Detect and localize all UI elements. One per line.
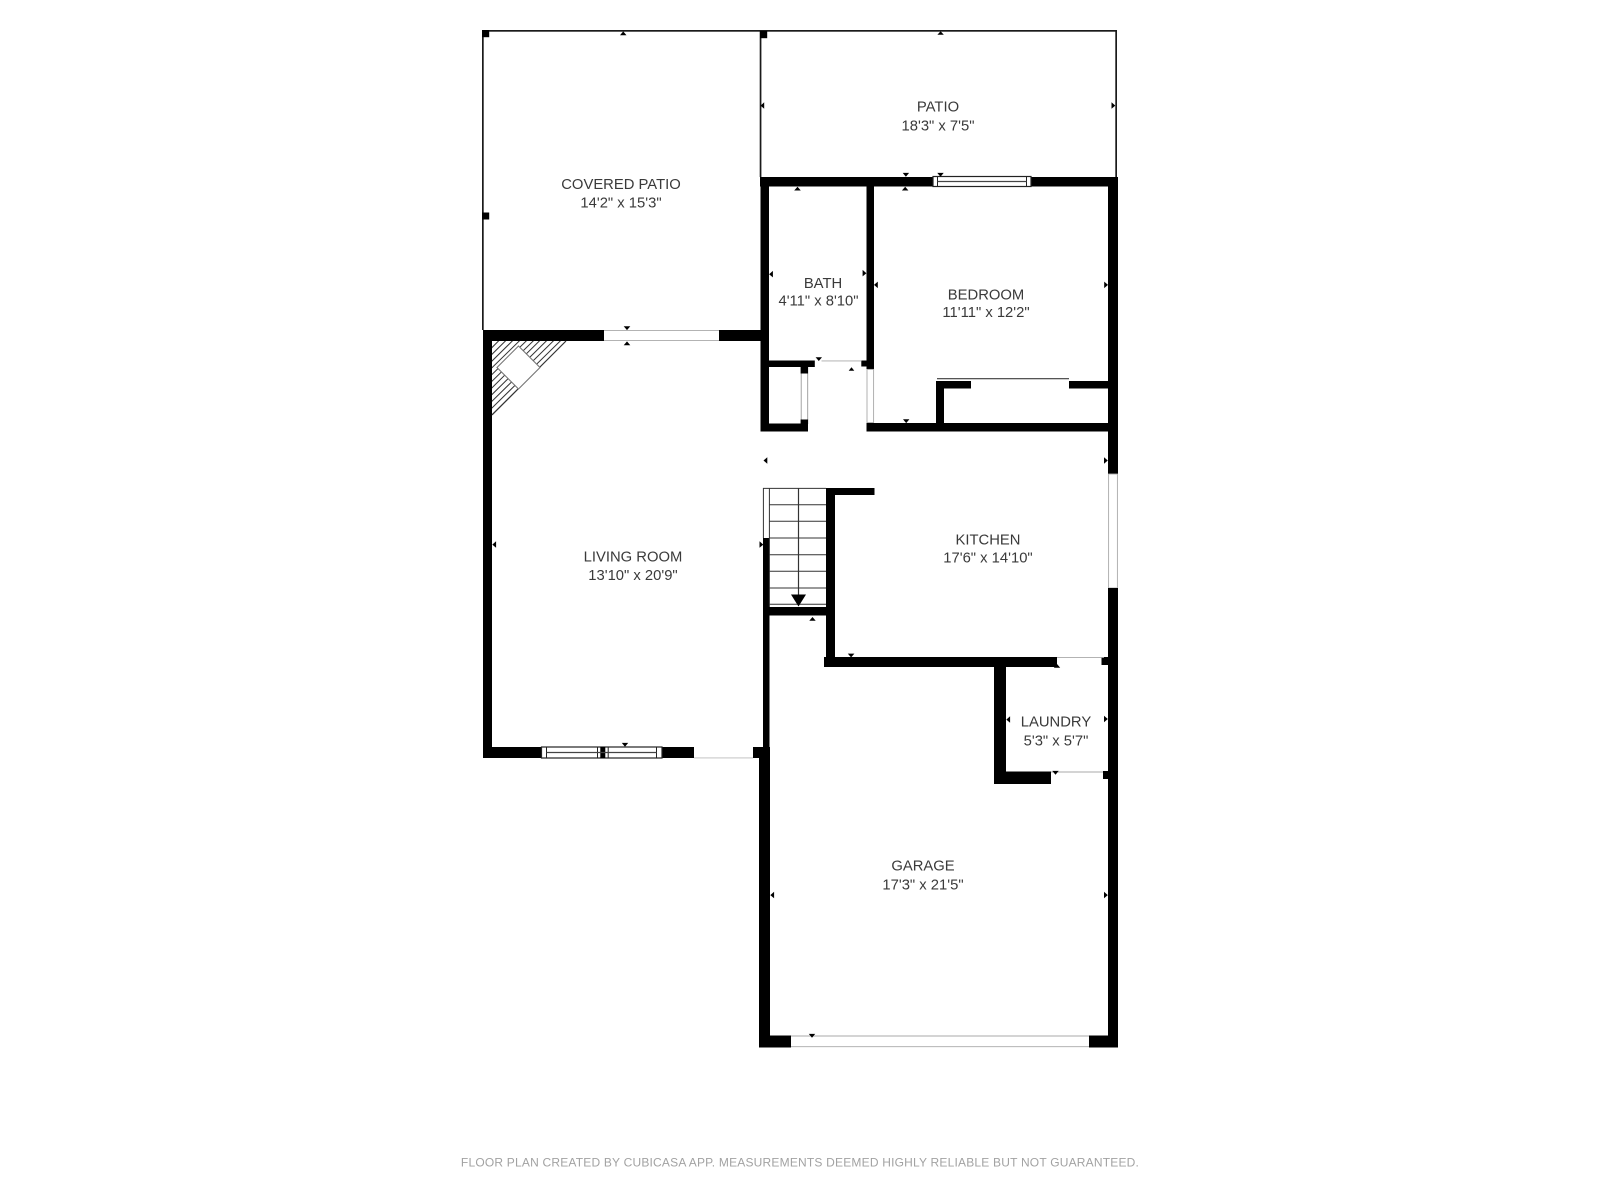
svg-text:PATIO: PATIO bbox=[917, 100, 959, 116]
svg-text:LAUNDRY: LAUNDRY bbox=[1021, 715, 1092, 731]
svg-text:13'10" x 20'9": 13'10" x 20'9" bbox=[588, 568, 677, 584]
svg-text:4'11" x 8'10": 4'11" x 8'10" bbox=[778, 294, 858, 310]
svg-text:COVERED PATIO: COVERED PATIO bbox=[561, 177, 681, 193]
svg-text:FLOOR PLAN CREATED BY CUBICASA: FLOOR PLAN CREATED BY CUBICASA APP. MEAS… bbox=[461, 1156, 1139, 1170]
svg-text:GARAGE: GARAGE bbox=[891, 859, 954, 875]
svg-text:LIVING ROOM: LIVING ROOM bbox=[584, 550, 683, 566]
svg-text:17'3" x 21'5": 17'3" x 21'5" bbox=[882, 878, 963, 894]
svg-text:18'3" x 7'5": 18'3" x 7'5" bbox=[902, 119, 975, 135]
svg-text:5'3" x 5'7": 5'3" x 5'7" bbox=[1024, 734, 1089, 750]
svg-text:17'6" x 14'10": 17'6" x 14'10" bbox=[943, 551, 1032, 567]
svg-text:11'11" x 12'2": 11'11" x 12'2" bbox=[942, 305, 1029, 321]
svg-text:BATH: BATH bbox=[804, 276, 842, 292]
svg-text:KITCHEN: KITCHEN bbox=[956, 533, 1021, 549]
svg-text:BEDROOM: BEDROOM bbox=[948, 288, 1024, 304]
svg-text:14'2" x 15'3": 14'2" x 15'3" bbox=[580, 196, 661, 212]
